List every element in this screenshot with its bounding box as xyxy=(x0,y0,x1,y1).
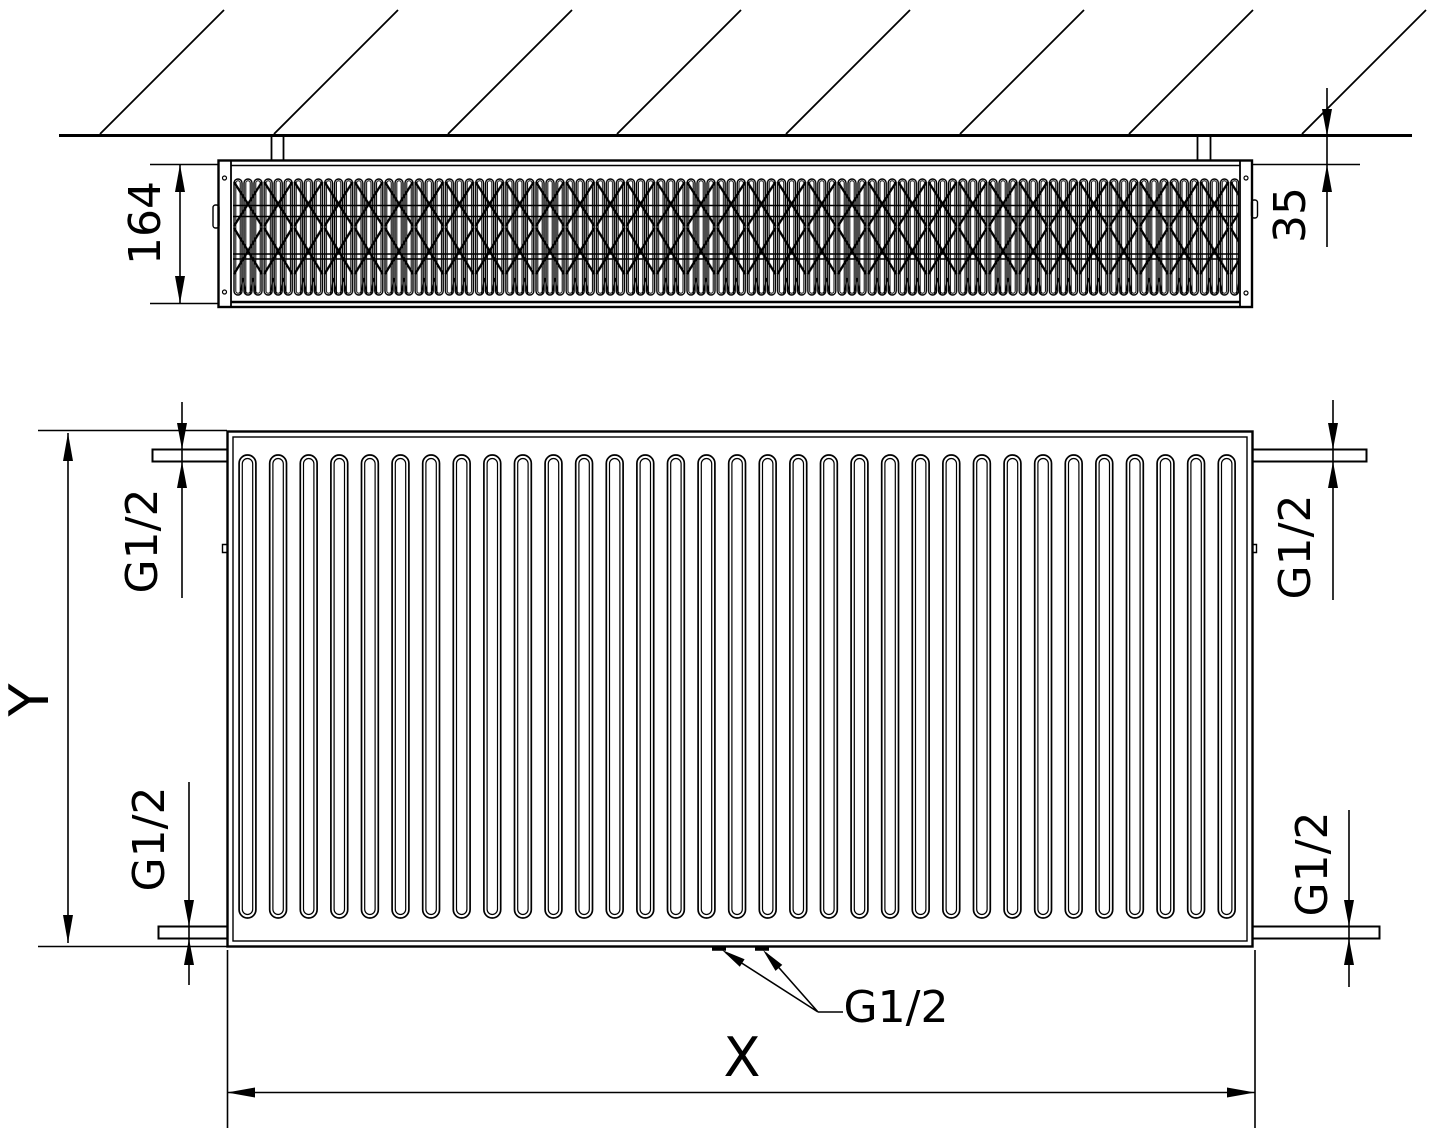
connection-label-top-left: G1/2 xyxy=(113,461,173,621)
front-view-radiator xyxy=(153,432,1380,950)
mounting-bracket-left xyxy=(272,135,284,161)
pipe-stub-top-left xyxy=(153,450,228,462)
connection-label-bottom-left: G1/2 xyxy=(120,759,180,919)
pipe-stub-bottom-left xyxy=(159,927,228,939)
dim-label-height: Y xyxy=(0,620,60,780)
dim-connection-bottom-left xyxy=(184,782,194,985)
pipe-stub-top-right xyxy=(1252,450,1367,462)
technical-drawing-canvas: 164 35 Y X G1/2 G1/2 G1/2 G1/2 G1/2 xyxy=(0,0,1429,1131)
top-view-radiator xyxy=(213,161,1258,308)
connection-label-bottom-right: G1/2 xyxy=(1283,784,1343,944)
connection-label-top-right: G1/2 xyxy=(1266,467,1326,627)
dim-connection-top-left xyxy=(177,402,187,598)
dim-label-width: X xyxy=(662,1028,822,1088)
mounting-bracket-right xyxy=(1198,135,1211,161)
convector-fins xyxy=(233,178,1239,296)
panel-channels xyxy=(239,455,1235,918)
dim-label-wall-distance: 35 xyxy=(1261,135,1321,295)
dim-connection-top-right xyxy=(1328,400,1338,600)
connection-label-bottom-center: G1/2 xyxy=(816,978,976,1038)
dim-label-depth: 164 xyxy=(116,143,176,303)
drawing-linework xyxy=(0,0,1429,1131)
dim-connection-bottom-right xyxy=(1344,810,1354,987)
wall-hatching xyxy=(100,10,1426,134)
